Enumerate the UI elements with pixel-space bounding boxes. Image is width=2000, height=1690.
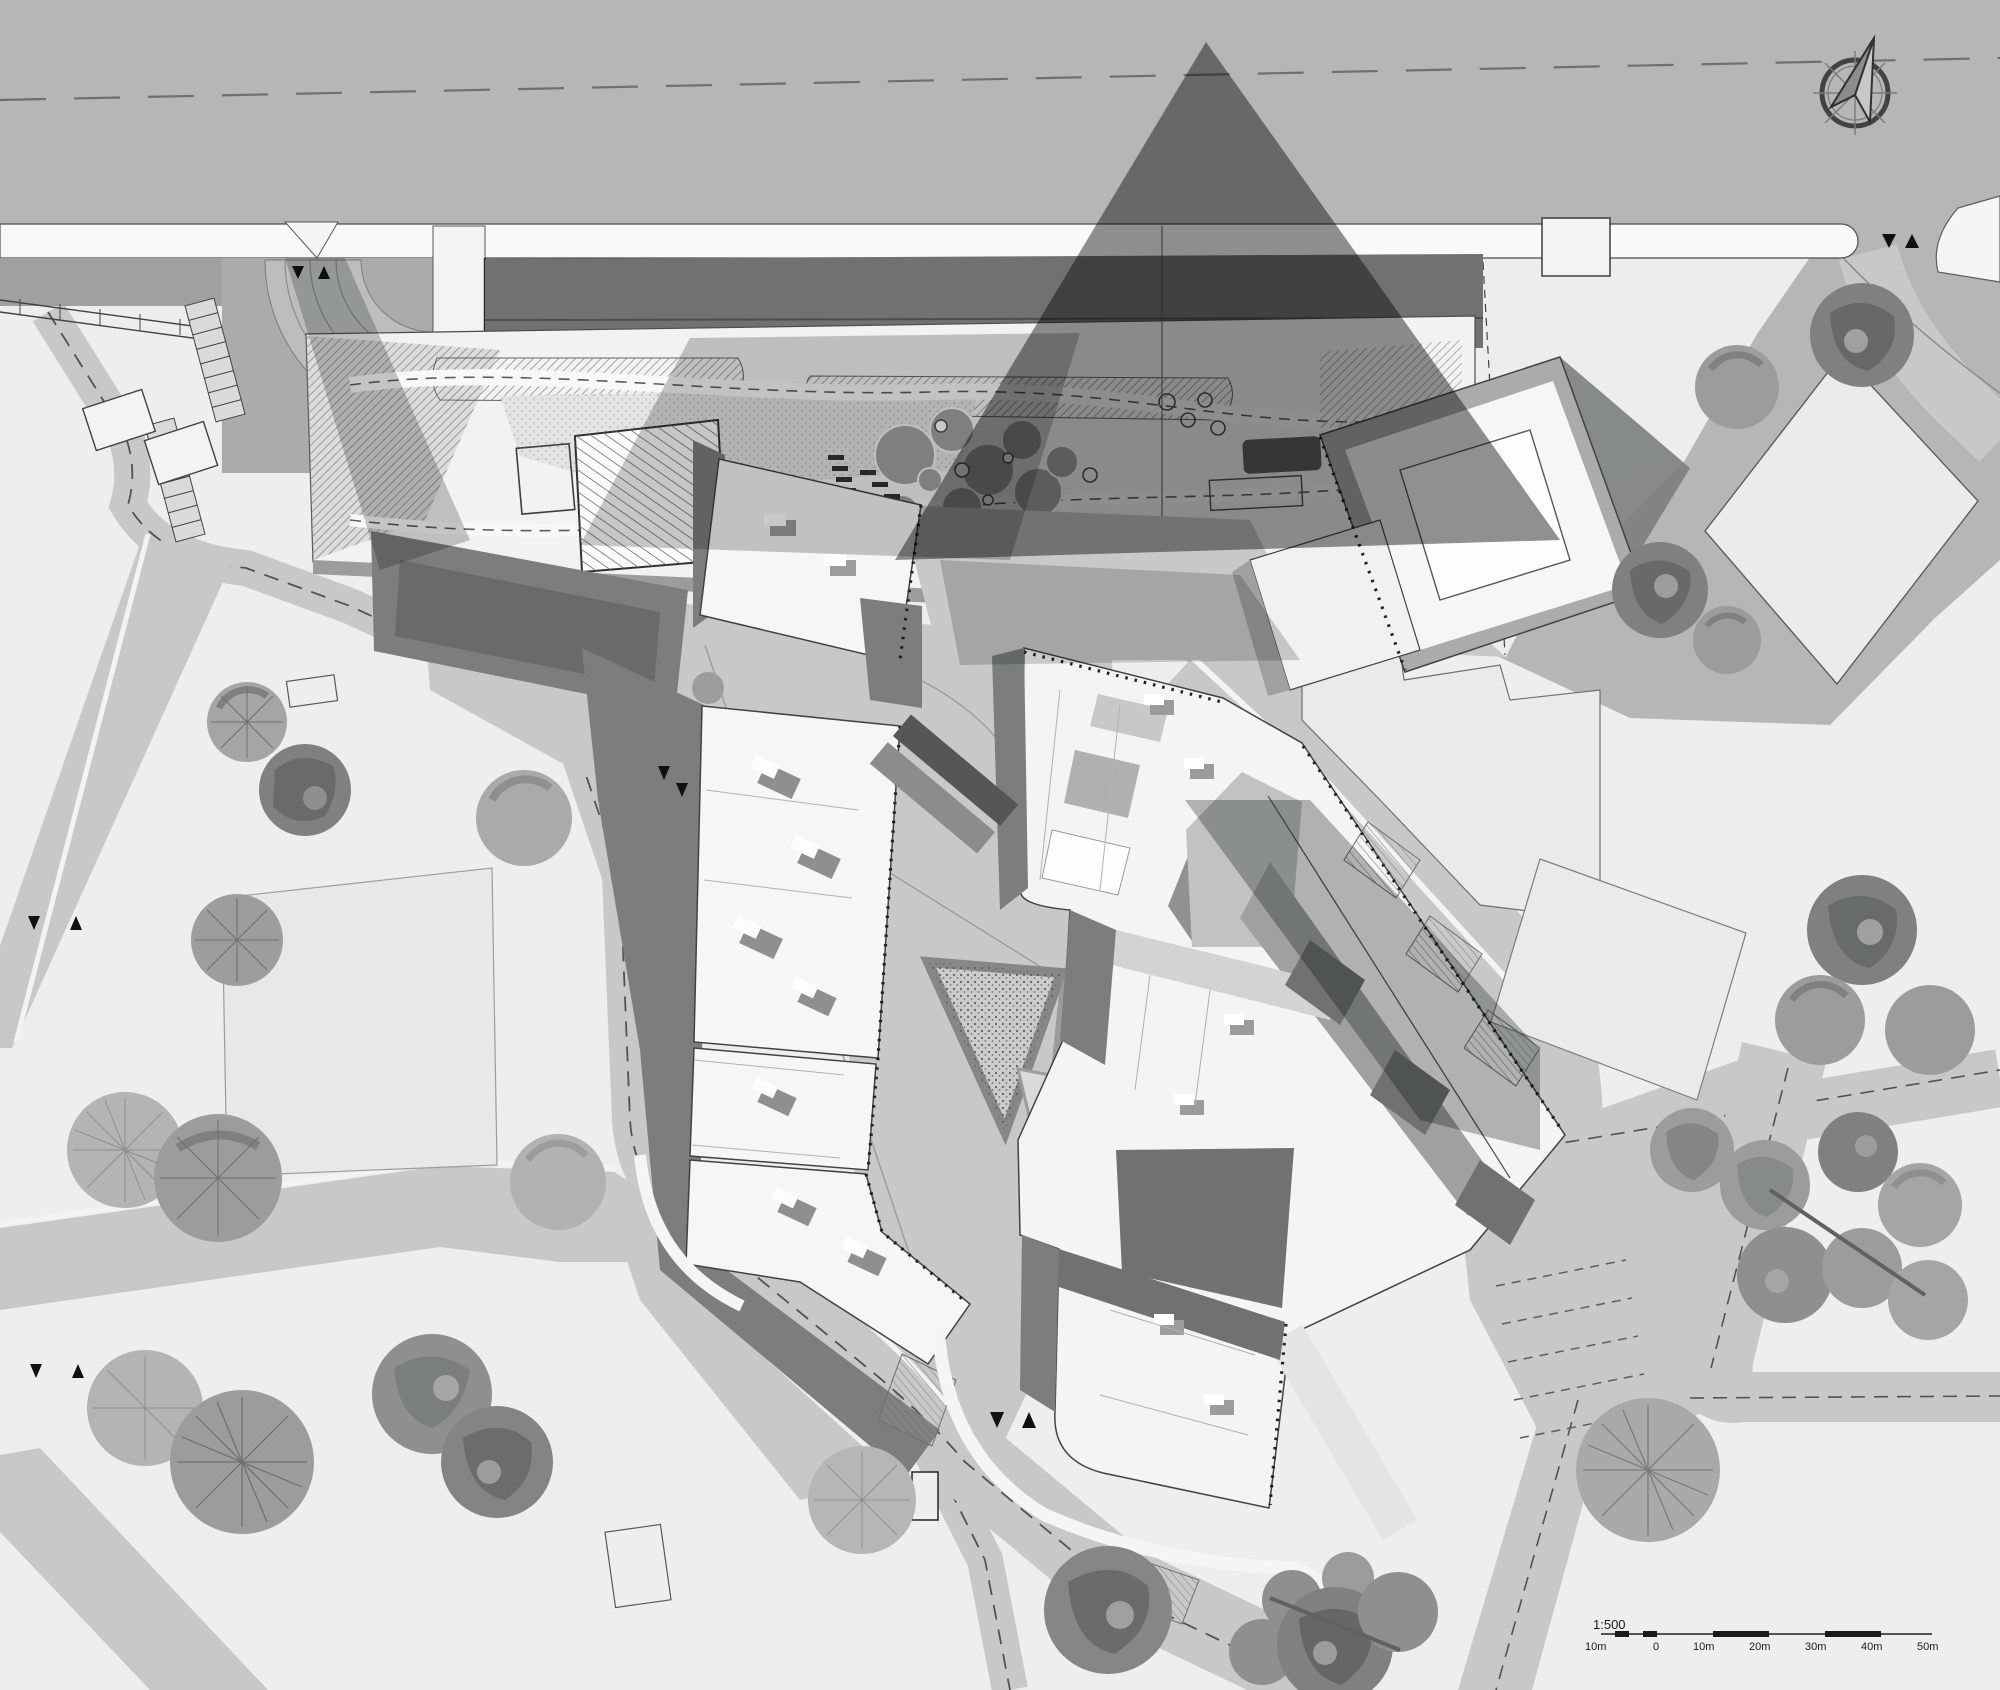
- svg-text:1:500: 1:500: [1593, 1617, 1626, 1632]
- svg-text:50m: 50m: [1917, 1641, 1938, 1653]
- svg-text:20m: 20m: [1749, 1641, 1770, 1653]
- svg-text:0: 0: [1653, 1641, 1659, 1653]
- svg-text:10m: 10m: [1693, 1641, 1714, 1653]
- svg-text:40m: 40m: [1861, 1641, 1882, 1653]
- svg-text:10m: 10m: [1585, 1641, 1606, 1653]
- svg-text:30m: 30m: [1805, 1641, 1826, 1653]
